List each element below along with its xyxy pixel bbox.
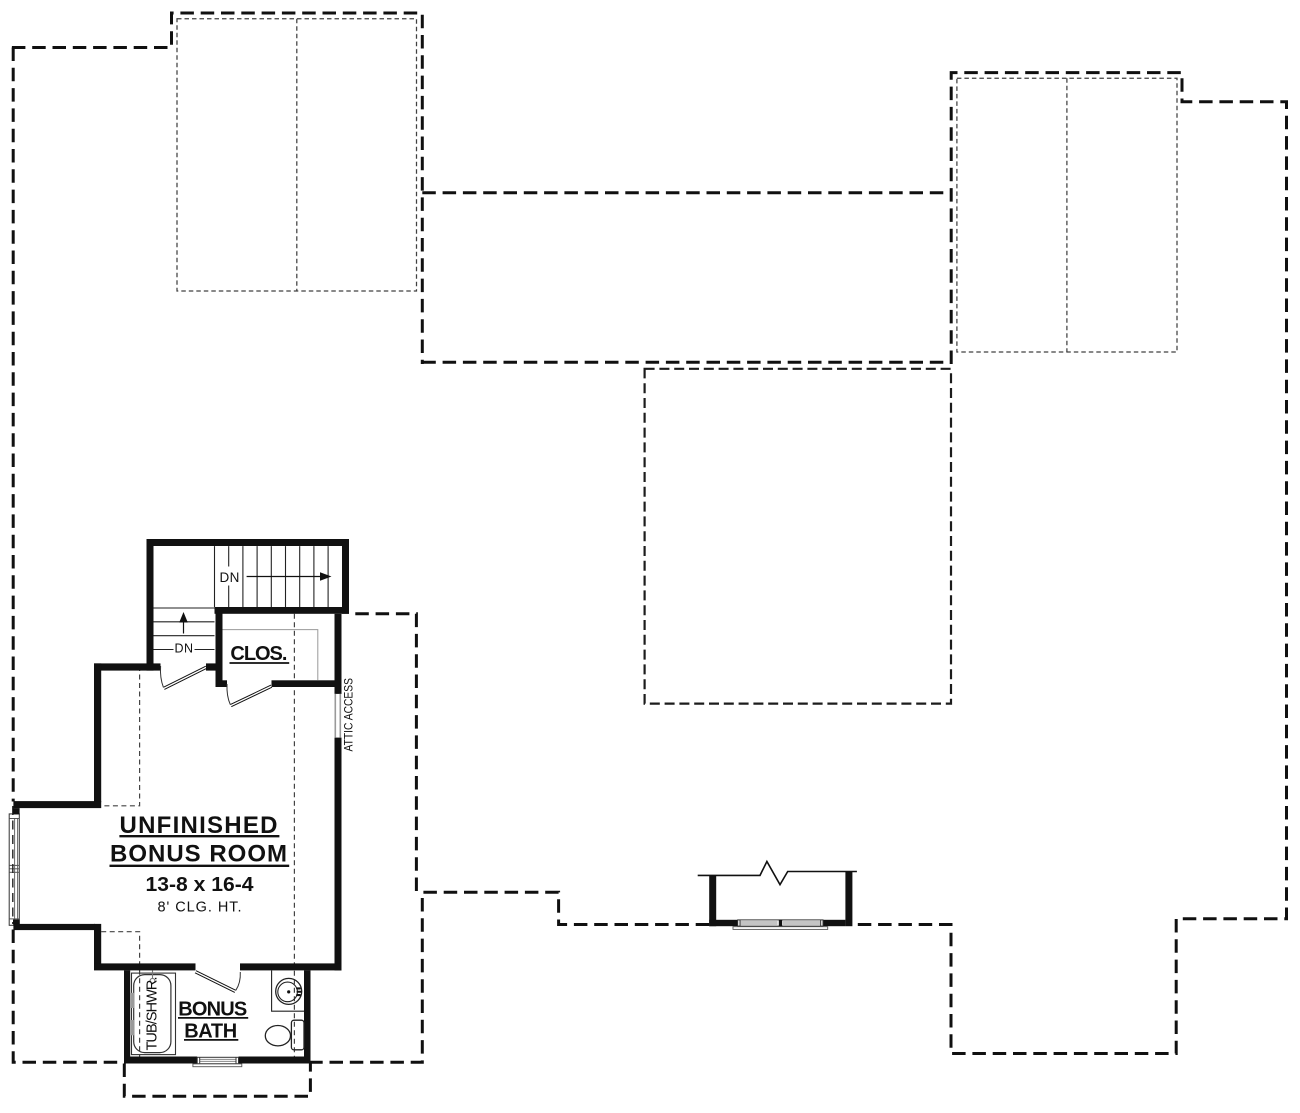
svg-text:TUB/SHWR.: TUB/SHWR. [145, 977, 161, 1051]
svg-text:13-8 x 16-4: 13-8 x 16-4 [146, 874, 255, 896]
svg-text:DN: DN [174, 642, 193, 656]
svg-text:CLOS.: CLOS. [230, 643, 288, 665]
svg-text:DN: DN [219, 570, 240, 585]
svg-text:ATTIC ACCESS: ATTIC ACCESS [341, 678, 355, 752]
svg-text:8' CLG. HT.: 8' CLG. HT. [158, 899, 242, 915]
svg-text:BONUS ROOM: BONUS ROOM [110, 841, 289, 868]
